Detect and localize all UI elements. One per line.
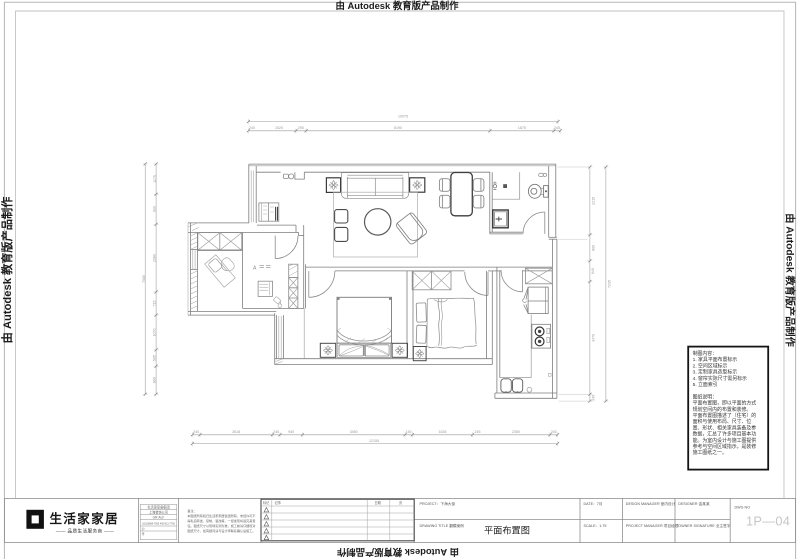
svg-text:PROJECT：下海大街: PROJECT：下海大街 (420, 501, 456, 506)
svg-text:150: 150 (406, 430, 412, 434)
svg-text:930: 930 (153, 206, 157, 212)
svg-text:—— 品质生活服务商 ——: —— 品质生活服务商 —— (56, 527, 114, 534)
svg-text:沪: 沪 (142, 526, 145, 531)
svg-text:规划空间内的布置和装修。: 规划空间内的布置和装修。 (693, 406, 752, 413)
svg-text:DRAWING TITLE 翻模案例: DRAWING TITLE 翻模案例 (420, 523, 465, 528)
svg-text:DESIGN MANAGER 室内设计: DESIGN MANAGER 室内设计 (626, 501, 676, 506)
svg-text:715: 715 (152, 301, 156, 307)
svg-text:(021)5889-7665 400-821-7706: (021)5889-7665 400-821-7706 (142, 523, 175, 526)
svg-text:2. 空间区域标示: 2. 空间区域标示 (693, 362, 728, 369)
svg-text:平面布置图: 平面布置图 (484, 525, 530, 536)
svg-text:OWNER SIGNATURE 业主签字: OWNER SIGNATURE 业主签字 (678, 523, 730, 528)
svg-text:由 Autodesk 教育版产品制作: 由 Autodesk 教育版产品制作 (783, 213, 796, 347)
svg-text:1520: 1520 (275, 126, 283, 130)
svg-text:2618: 2618 (232, 430, 240, 434)
svg-text:240: 240 (249, 126, 255, 130)
svg-text:2215: 2215 (591, 197, 595, 205)
svg-text:5. 立面索引: 5. 立面索引 (693, 381, 718, 388)
svg-text:240: 240 (592, 395, 596, 401)
svg-text:940: 940 (288, 430, 294, 434)
svg-text:1875: 1875 (518, 126, 526, 130)
svg-text:日期: 日期 (375, 500, 381, 505)
svg-text:7235: 7235 (607, 280, 611, 288)
svg-text:号: 号 (142, 531, 145, 536)
svg-text:4. 窗帘实际尺寸需另标示: 4. 窗帘实际尺寸需另标示 (693, 375, 747, 382)
svg-text:DATE：7月: DATE：7月 (584, 501, 603, 506)
svg-text:3. 定制家具造型标示: 3. 定制家具造型标示 (693, 369, 738, 376)
svg-text:图纸尺寸，如有疑问请与设计师联系确认后施工。: 图纸尺寸，如有疑问请与设计师联系确认后施工。 (187, 528, 255, 533)
svg-text:上海装饰公司: 上海装饰公司 (149, 509, 168, 514)
svg-text:制图内容：: 制图内容： (693, 350, 717, 357)
svg-text:面积与使用布局、尺寸、位: 面积与使用布局、尺寸、位 (693, 418, 752, 425)
svg-text:记事: 记事 (275, 500, 282, 505)
svg-text:得私自转发、复制、篡改等，一经发现将追究其责: 得私自转发、复制、篡改等，一经发现将追究其责 (187, 518, 255, 523)
svg-text:由 Autodesk 教育版产品制作: 由 Autodesk 教育版产品制作 (0, 197, 14, 344)
svg-text:1. 家具平面布置标示: 1. 家具平面布置标示 (693, 356, 738, 363)
svg-text:参考与空间区域指示，是装修: 参考与空间区域指示，是装修 (693, 443, 757, 450)
svg-text:1175: 1175 (153, 175, 157, 183)
svg-text:能。为室内设计与施工图提供: 能。为室内设计与施工图提供 (693, 437, 757, 444)
svg-text:3470: 3470 (591, 334, 595, 342)
svg-text:置、形状、相关家具装备及参: 置、形状、相关家具装备及参 (693, 424, 757, 431)
svg-text:GR-ALF: GR-ALF (153, 515, 165, 519)
svg-text:640: 640 (591, 268, 595, 274)
svg-text:由 Autodesk 教育版产品制作: 由 Autodesk 教育版产品制作 (336, 547, 459, 558)
svg-text:页: 页 (399, 501, 402, 505)
svg-text:245: 245 (551, 430, 557, 434)
svg-text:数据，汇总了许多项目基本功: 数据，汇总了许多项目基本功 (693, 431, 757, 438)
svg-text:2080: 2080 (153, 254, 157, 262)
svg-text:10075: 10075 (398, 115, 408, 119)
svg-text:6190: 6190 (394, 126, 402, 130)
svg-text:12155: 12155 (369, 439, 379, 443)
svg-text:860: 860 (153, 377, 157, 383)
svg-text:245: 245 (554, 126, 560, 130)
svg-text:1635: 1635 (439, 430, 447, 434)
svg-text:DWG NO: DWG NO (735, 505, 751, 509)
svg-text:800: 800 (591, 245, 595, 251)
svg-text:245: 245 (273, 430, 279, 434)
svg-text:施工图纸之一。: 施工图纸之一。 (693, 449, 727, 456)
svg-text:由 Autodesk 教育版产品制作: 由 Autodesk 教育版产品制作 (336, 0, 460, 11)
svg-text:生活家家居: 生活家家居 (50, 511, 120, 526)
svg-text:505: 505 (153, 355, 157, 361)
svg-text:标记: 标记 (263, 500, 270, 505)
svg-text:1070: 1070 (152, 329, 156, 337)
svg-text:2360: 2360 (512, 430, 520, 434)
svg-text:备注：: 备注： (187, 508, 196, 513)
svg-text:PROJECT MANAGER 项目经理: PROJECT MANAGER 项目经理 (626, 523, 679, 528)
svg-text:295: 295 (298, 126, 304, 130)
svg-text:1P—04: 1P—04 (746, 514, 790, 529)
svg-text:A: A (253, 265, 257, 271)
svg-text:DESIGNER 金某某: DESIGNER 金某某 (678, 501, 710, 506)
svg-text:SCALE：1:75: SCALE：1:75 (584, 524, 607, 528)
svg-text:平面布置图描述了（住宅）的: 平面布置图描述了（住宅）的 (693, 412, 757, 419)
svg-text:平面布置图，即以平面的方式: 平面布置图，即以平面的方式 (693, 400, 757, 407)
svg-text:240: 240 (193, 430, 199, 434)
svg-text:3450: 3450 (350, 430, 358, 434)
svg-text:任。图纸尺寸以现场实测为准，施工前请仔细核对: 任。图纸尺寸以现场实测为准，施工前请仔细核对 (187, 523, 255, 528)
svg-text:7080: 7080 (142, 275, 146, 283)
svg-text:生活家家居集团: 生活家家居集团 (147, 504, 169, 509)
svg-text:245: 245 (475, 430, 481, 434)
svg-text:图纸说明：: 图纸说明： (693, 393, 717, 400)
svg-text:本图纸所有权归生活家家居集团所有，未经许可不: 本图纸所有权归生活家家居集团所有，未经许可不 (187, 513, 255, 518)
